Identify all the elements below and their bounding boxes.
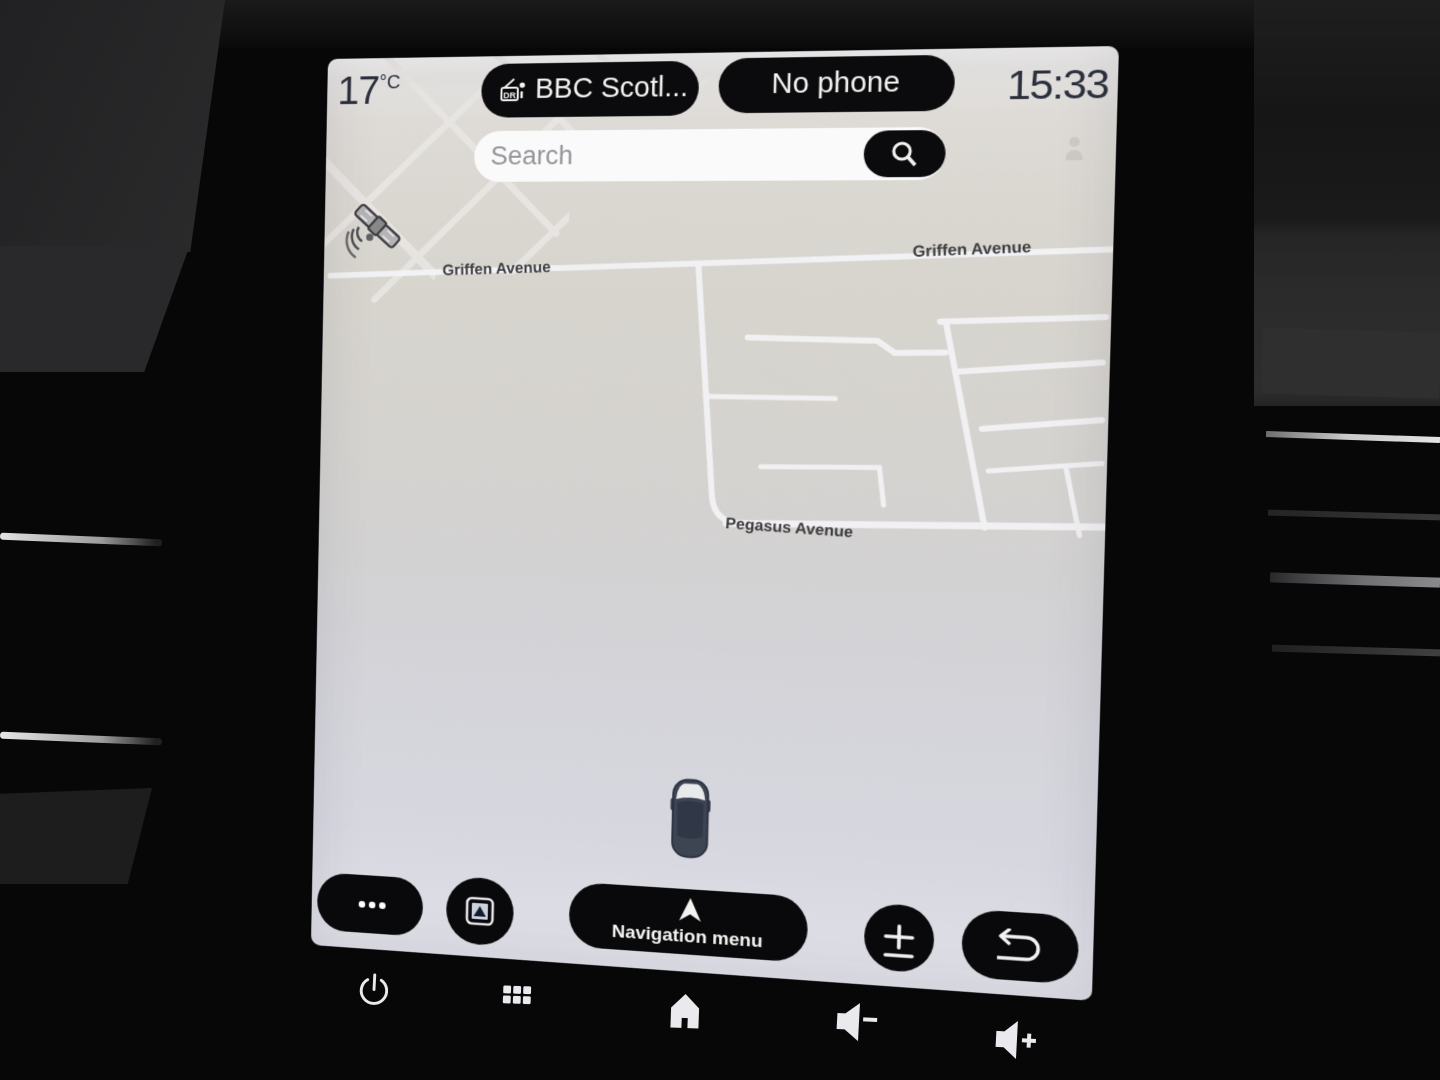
svg-text:DR: DR (503, 91, 516, 101)
